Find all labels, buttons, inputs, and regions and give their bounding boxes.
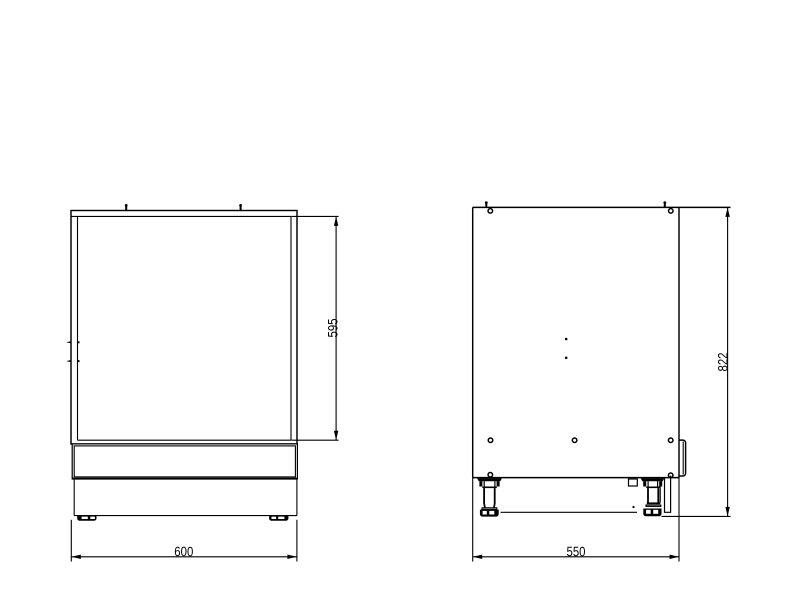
- svg-text:595: 595: [326, 319, 341, 338]
- svg-text:550: 550: [566, 544, 585, 559]
- svg-text:822: 822: [715, 353, 730, 372]
- svg-text:600: 600: [174, 544, 193, 559]
